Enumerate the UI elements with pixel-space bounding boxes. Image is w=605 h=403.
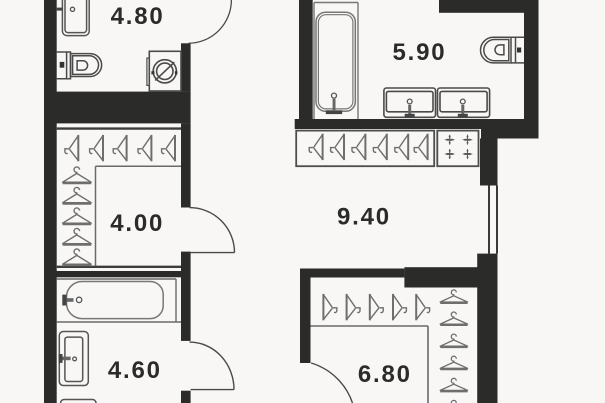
svg-text:6.80: 6.80	[358, 361, 412, 388]
svg-text:5.90: 5.90	[393, 39, 447, 66]
svg-text:9.40: 9.40	[337, 204, 391, 231]
svg-text:4.80: 4.80	[111, 3, 165, 30]
svg-text:4.00: 4.00	[110, 210, 164, 237]
svg-text:4.60: 4.60	[108, 357, 162, 384]
